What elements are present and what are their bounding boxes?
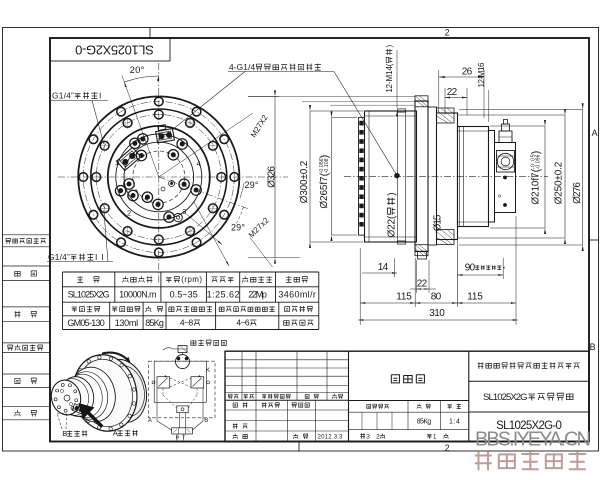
svg-text:SL1025X2G: SL1025X2G [68,290,110,300]
svg-text:(rpm): (rpm) [181,275,202,284]
svg-text:1:25.62: 1:25.62 [207,290,240,300]
svg-text:14: 14 [378,262,389,273]
svg-text:22: 22 [417,279,428,290]
svg-text:310: 310 [429,308,445,319]
svg-text:Ø250±0.2: Ø250±0.2 [554,161,565,204]
svg-text:G1/4”: G1/4” [52,90,74,100]
svg-text:I: I [99,90,101,100]
svg-text:3: 3 [182,207,186,216]
svg-text:1: 1 [115,158,119,167]
svg-text:4-G1/4: 4-G1/4 [229,62,256,72]
svg-text:20°: 20° [130,65,145,76]
svg-text:B: B [204,418,208,424]
svg-text:B: B [590,342,596,352]
svg-text:22Mp: 22Mp [248,290,267,300]
svg-text:85Kg: 85Kg [417,418,432,425]
svg-text:90: 90 [465,262,476,273]
svg-text:A: A [148,418,152,424]
svg-text:A: A [592,128,598,138]
svg-text:2: 2 [445,28,450,38]
svg-text:K: K [206,368,210,374]
svg-text:1:4: 1:4 [449,418,460,425]
svg-text:130ml: 130ml [115,318,138,328]
svg-text:29°: 29° [231,223,245,233]
svg-text:SL1025X2G-0: SL1025X2G-0 [75,42,154,57]
svg-text:Ø326: Ø326 [267,166,278,188]
svg-text:P: P [176,435,180,441]
svg-text:GM05-130: GM05-130 [67,318,104,328]
svg-text:115: 115 [396,292,412,303]
svg-text:3460ml/r: 3460ml/r [278,290,315,300]
svg-text:-0.096: -0.096 [535,154,541,169]
svg-text:): ) [318,154,330,158]
svg-text:): ) [385,45,394,48]
svg-text:4~8: 4~8 [180,318,194,328]
svg-text:2012.3.3: 2012.3.3 [318,434,344,440]
svg-text:Ø22(: Ø22( [387,215,398,237]
svg-text:BBS.IYEYA.CN: BBS.IYEYA.CN [475,429,591,451]
svg-text:0.5~35: 0.5~35 [170,290,198,300]
svg-text:): ) [387,192,398,195]
svg-text:12-M16: 12-M16 [477,62,486,88]
svg-text:Ø300±0.2: Ø300±0.2 [299,160,310,203]
svg-text:29°: 29° [244,180,258,190]
svg-text:10000N.m: 10000N.m [119,290,156,300]
svg-text:A: A [113,429,118,438]
svg-text:85Kg: 85Kg [145,318,164,328]
svg-text:SL1025X2G: SL1025X2G [483,392,528,403]
svg-text:115: 115 [467,292,483,303]
svg-text:Ø15: Ø15 [433,214,444,231]
svg-text:Ø210f7: Ø210f7 [531,172,542,205]
svg-text:80: 80 [431,292,442,303]
svg-text:26: 26 [462,67,473,78]
svg-text:4: 4 [196,159,200,168]
svg-text:-0.108: -0.108 [324,158,330,173]
svg-text:2: 2 [445,443,450,453]
svg-text:B: B [62,429,67,438]
svg-text:G1/4”: G1/4” [48,252,70,262]
svg-text:12-M14(: 12-M14( [385,63,394,92]
svg-text:): ) [530,150,542,154]
svg-text:Ø276: Ø276 [572,182,583,204]
svg-text:1: 1 [433,433,437,440]
svg-text:2: 2 [127,209,131,218]
svg-text:Ø265f7: Ø265f7 [319,176,330,209]
svg-text:×: × [502,265,505,271]
svg-text:22: 22 [447,87,458,98]
svg-text:4~6: 4~6 [236,318,250,328]
